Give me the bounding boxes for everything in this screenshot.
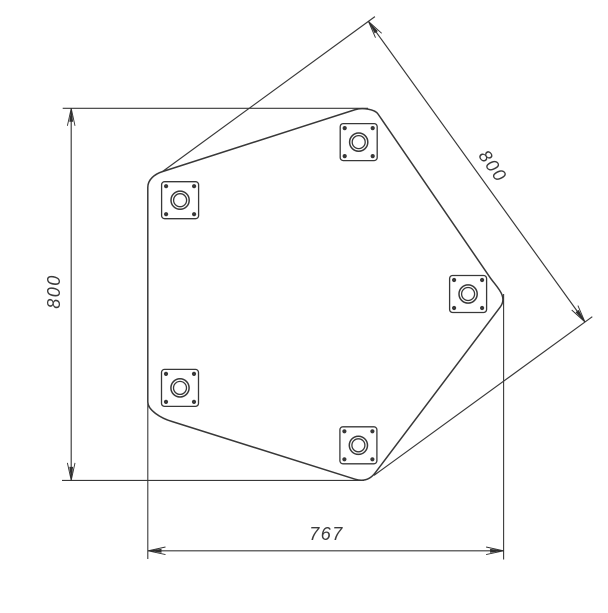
svg-text:800: 800 bbox=[44, 274, 64, 309]
svg-text:767: 767 bbox=[309, 524, 344, 544]
